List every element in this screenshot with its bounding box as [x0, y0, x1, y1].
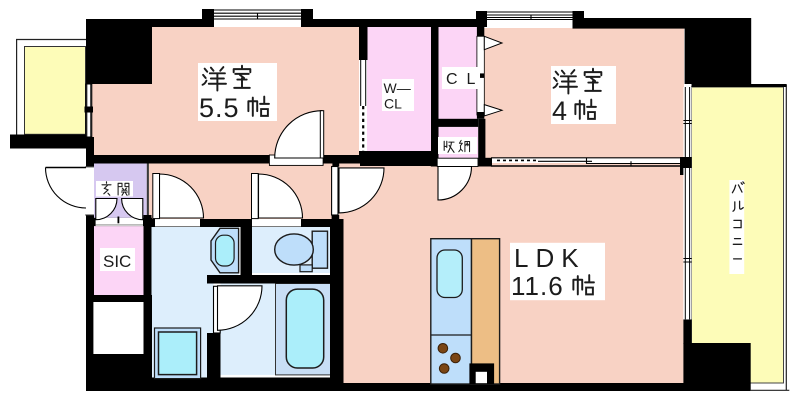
svg-text:CL: CL: [446, 71, 484, 88]
svg-text:5.5: 5.5: [199, 93, 240, 123]
svg-text:11.6: 11.6: [511, 271, 564, 301]
svg-text:SIC: SIC: [103, 252, 131, 271]
svg-text:4: 4: [552, 96, 567, 126]
svg-text:W—: W—: [384, 80, 411, 96]
svg-text:CL: CL: [384, 96, 402, 112]
svg-text:LDK: LDK: [514, 243, 586, 273]
